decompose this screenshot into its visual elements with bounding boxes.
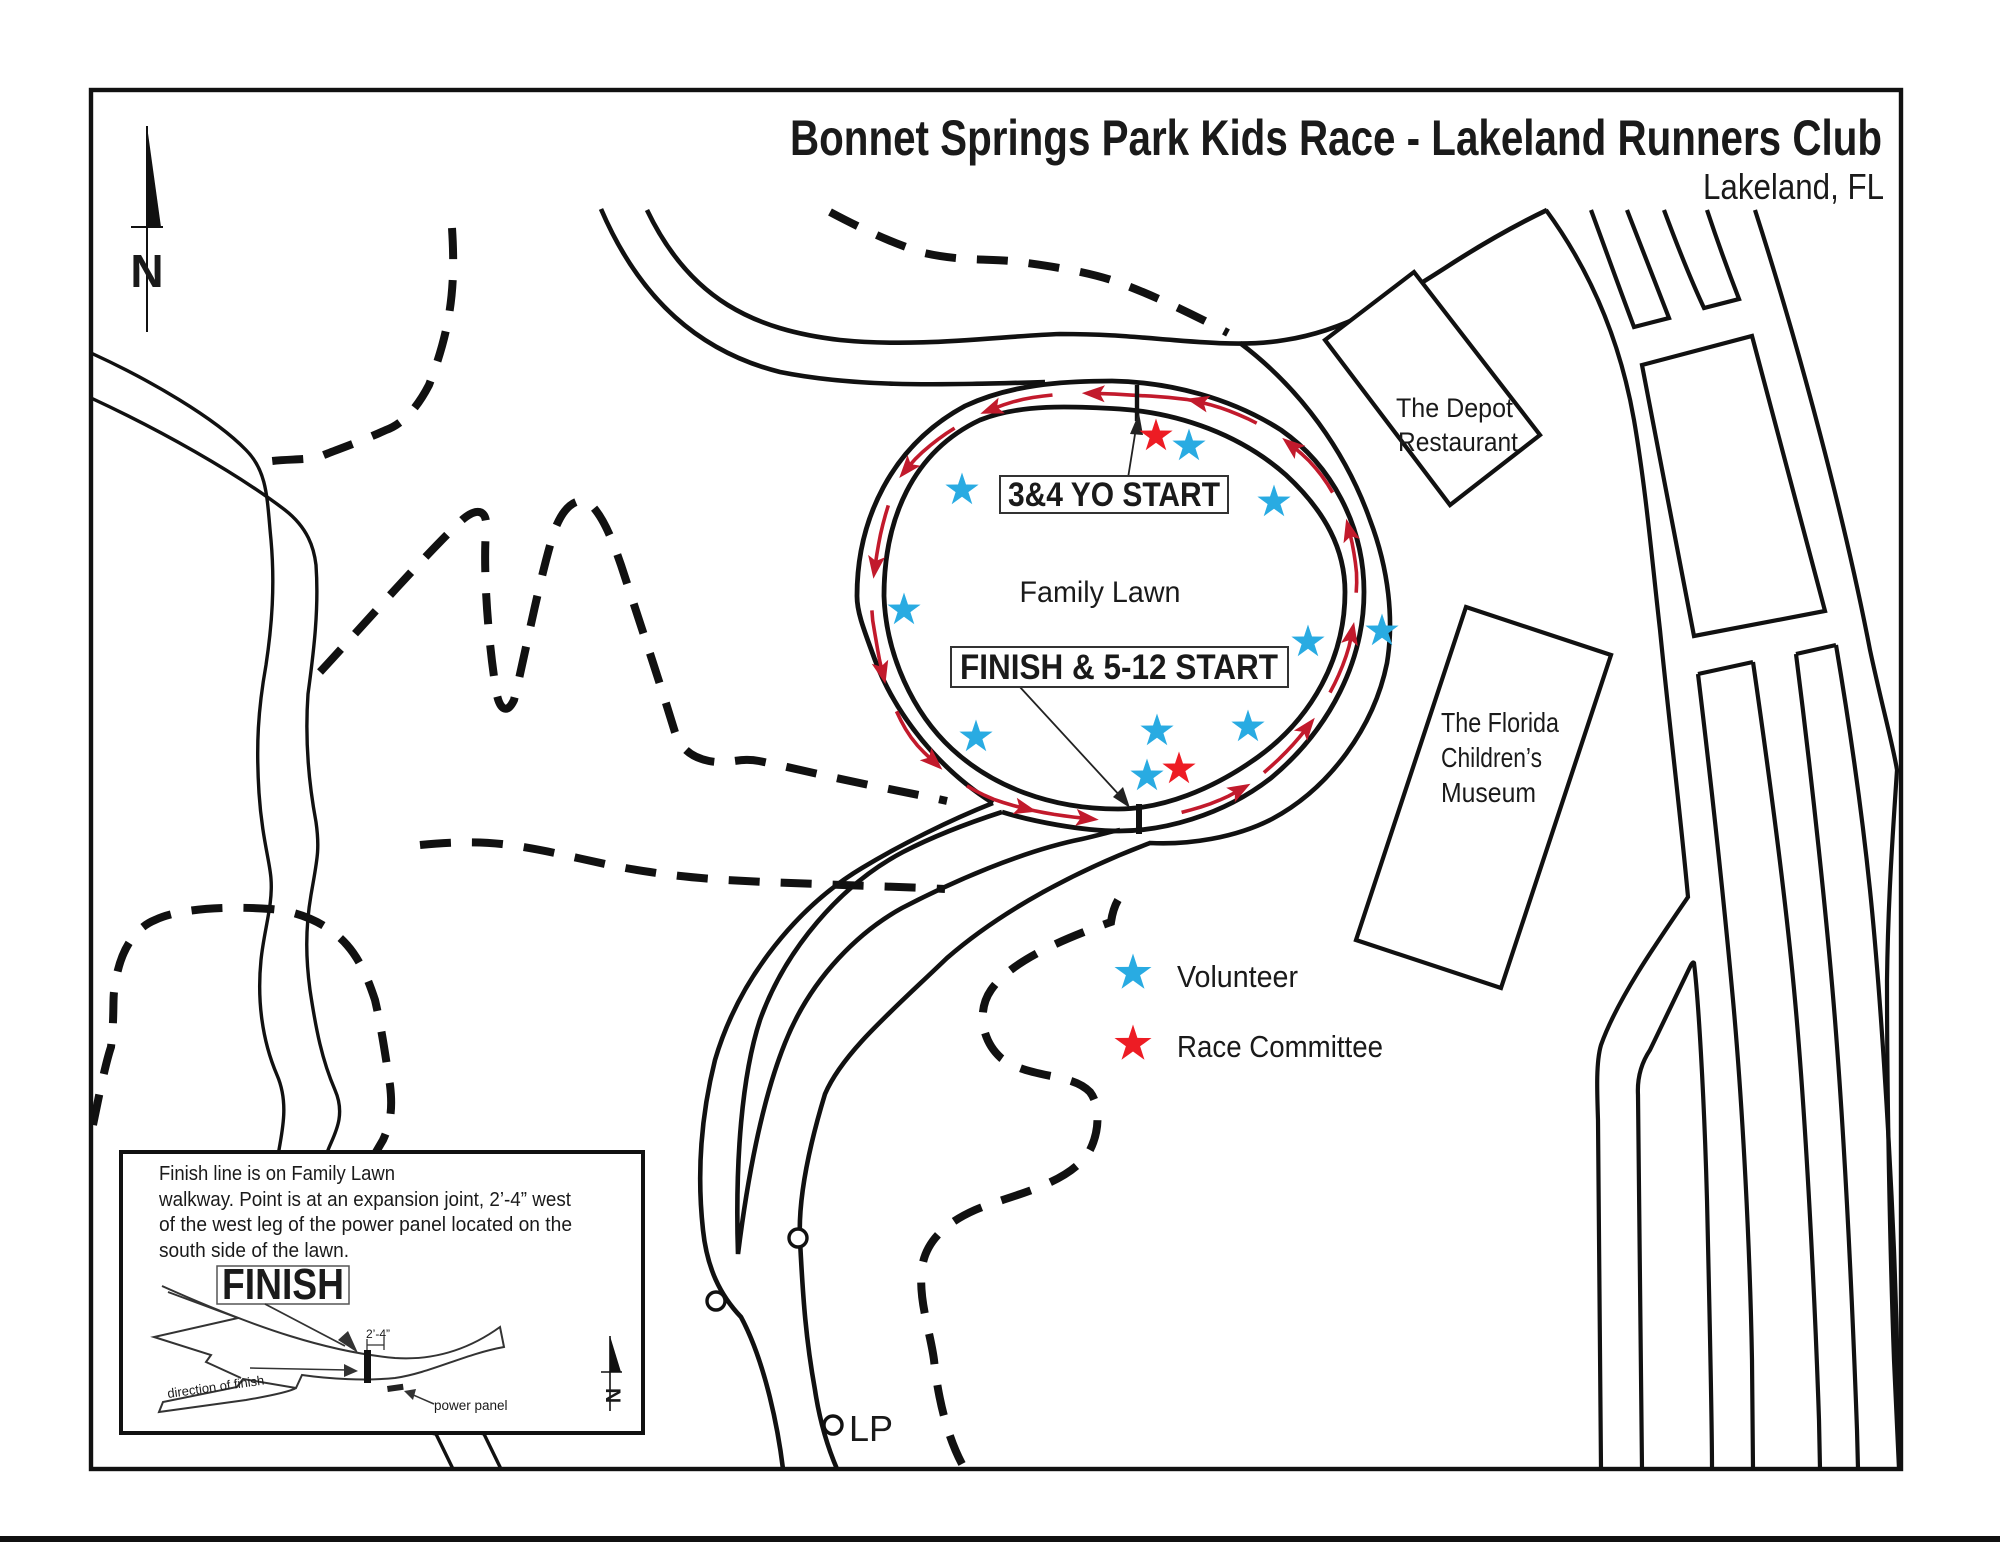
- svg-text:FINISH & 5-12 START: FINISH & 5-12 START: [960, 648, 1278, 687]
- svg-text:Children’s: Children’s: [1441, 742, 1542, 773]
- svg-text:Bonnet Springs Park Kids Race: Bonnet Springs Park Kids Race - Lakeland…: [790, 110, 1882, 166]
- svg-text:Race Committee: Race Committee: [1177, 1029, 1383, 1064]
- svg-text:N: N: [130, 245, 163, 297]
- svg-text:2’-4”: 2’-4”: [366, 1327, 390, 1341]
- svg-text:power panel: power panel: [434, 1398, 508, 1413]
- svg-text:of the west leg of the power p: of the west leg of the power panel locat…: [159, 1214, 572, 1236]
- svg-text:3&4 YO START: 3&4 YO START: [1008, 476, 1220, 514]
- svg-text:Family Lawn: Family Lawn: [1020, 576, 1181, 609]
- svg-text:The Depot: The Depot: [1396, 393, 1513, 423]
- svg-text:south side of the lawn.: south side of the lawn.: [159, 1240, 349, 1262]
- svg-text:Museum: Museum: [1441, 777, 1536, 808]
- svg-text:Lakeland, FL: Lakeland, FL: [1703, 166, 1884, 207]
- svg-text:Finish line is on Family Lawn: Finish line is on Family Lawn: [159, 1163, 395, 1185]
- svg-text:FINISH: FINISH: [222, 1260, 344, 1309]
- svg-text:walkway. Point is at an expans: walkway. Point is at an expansion joint,…: [158, 1189, 571, 1211]
- svg-text:LP: LP: [849, 1408, 893, 1449]
- svg-text:N: N: [601, 1388, 624, 1403]
- svg-text:The Florida: The Florida: [1441, 707, 1559, 738]
- svg-text:Volunteer: Volunteer: [1177, 959, 1298, 994]
- svg-text:Restaurant: Restaurant: [1398, 427, 1518, 457]
